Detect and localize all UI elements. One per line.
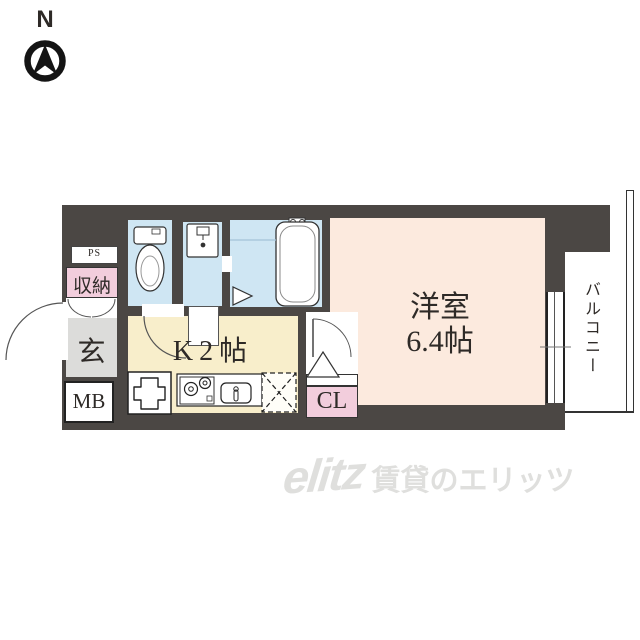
plan-graphics — [0, 0, 640, 640]
washer-pan-icon — [128, 372, 171, 414]
fridge-space-icon — [262, 373, 296, 412]
entrance-label: 玄 — [66, 330, 117, 370]
compass-north-label: N — [26, 6, 64, 34]
ps-label: PS — [71, 248, 118, 259]
watermark-text: 賃貸のエリッツ — [371, 457, 574, 499]
washbasin-icon — [187, 224, 218, 257]
main-room-size-label: 6.4帖 — [345, 316, 535, 360]
kitchen-label: K2帖 — [138, 329, 288, 369]
kitchen-counter-icon — [177, 374, 262, 406]
storage-label: 収納 — [66, 271, 118, 298]
bath-door-marker — [233, 287, 252, 305]
watermark-logo: elitz — [281, 445, 367, 504]
balcony-label: バルコニー — [578, 258, 602, 398]
watermark: elitz賃貸のエリッツ — [284, 448, 584, 508]
toilet-icon — [134, 227, 166, 291]
meter-box-label: MB — [64, 389, 114, 414]
floorplan-page: N PS 収納 玄 MB K2帖 CL 洋室 6.4帖 バルコニー elitz賃… — [0, 0, 640, 640]
storage-door-arcs — [68, 299, 115, 317]
compass-icon — [28, 44, 63, 79]
closet-door-marker — [307, 352, 339, 377]
closet-label: CL — [306, 388, 358, 415]
entrance-door-arc — [6, 303, 63, 360]
